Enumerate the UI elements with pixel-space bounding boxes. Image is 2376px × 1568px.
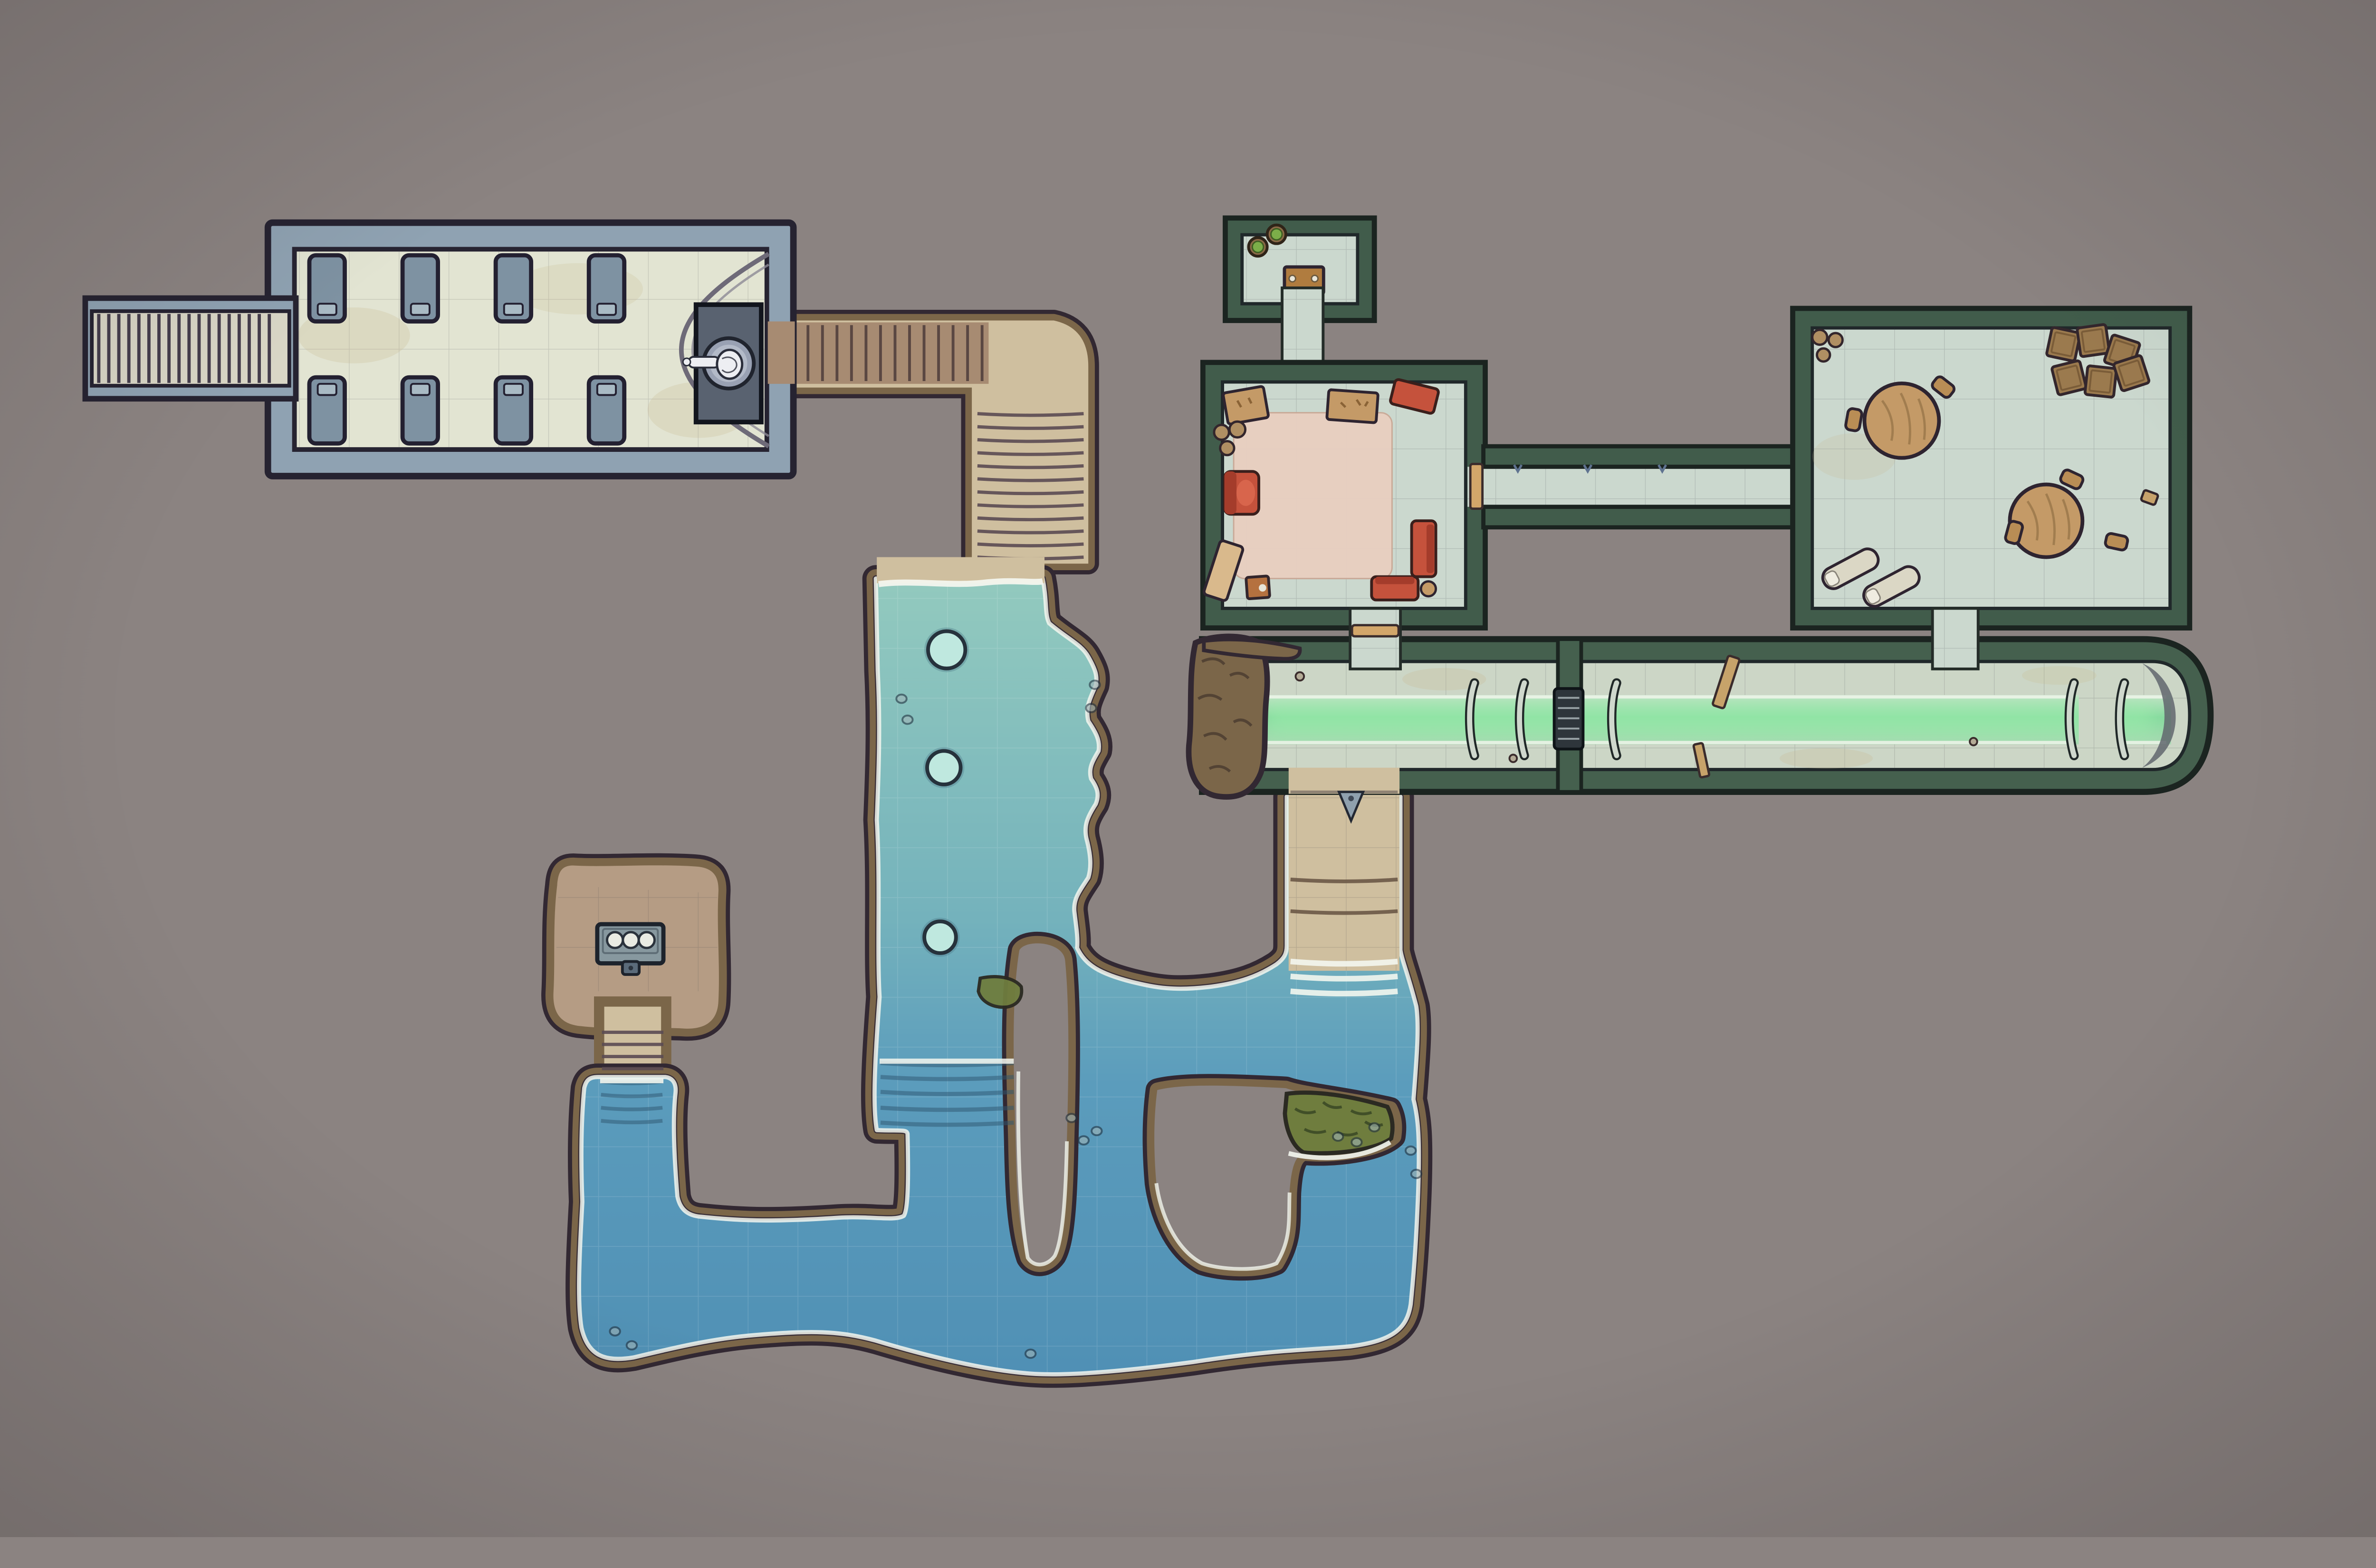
vignette-overlay [0, 0, 2376, 1537]
battle-map-stage [0, 0, 2376, 1537]
dungeon-map [0, 0, 2376, 1537]
